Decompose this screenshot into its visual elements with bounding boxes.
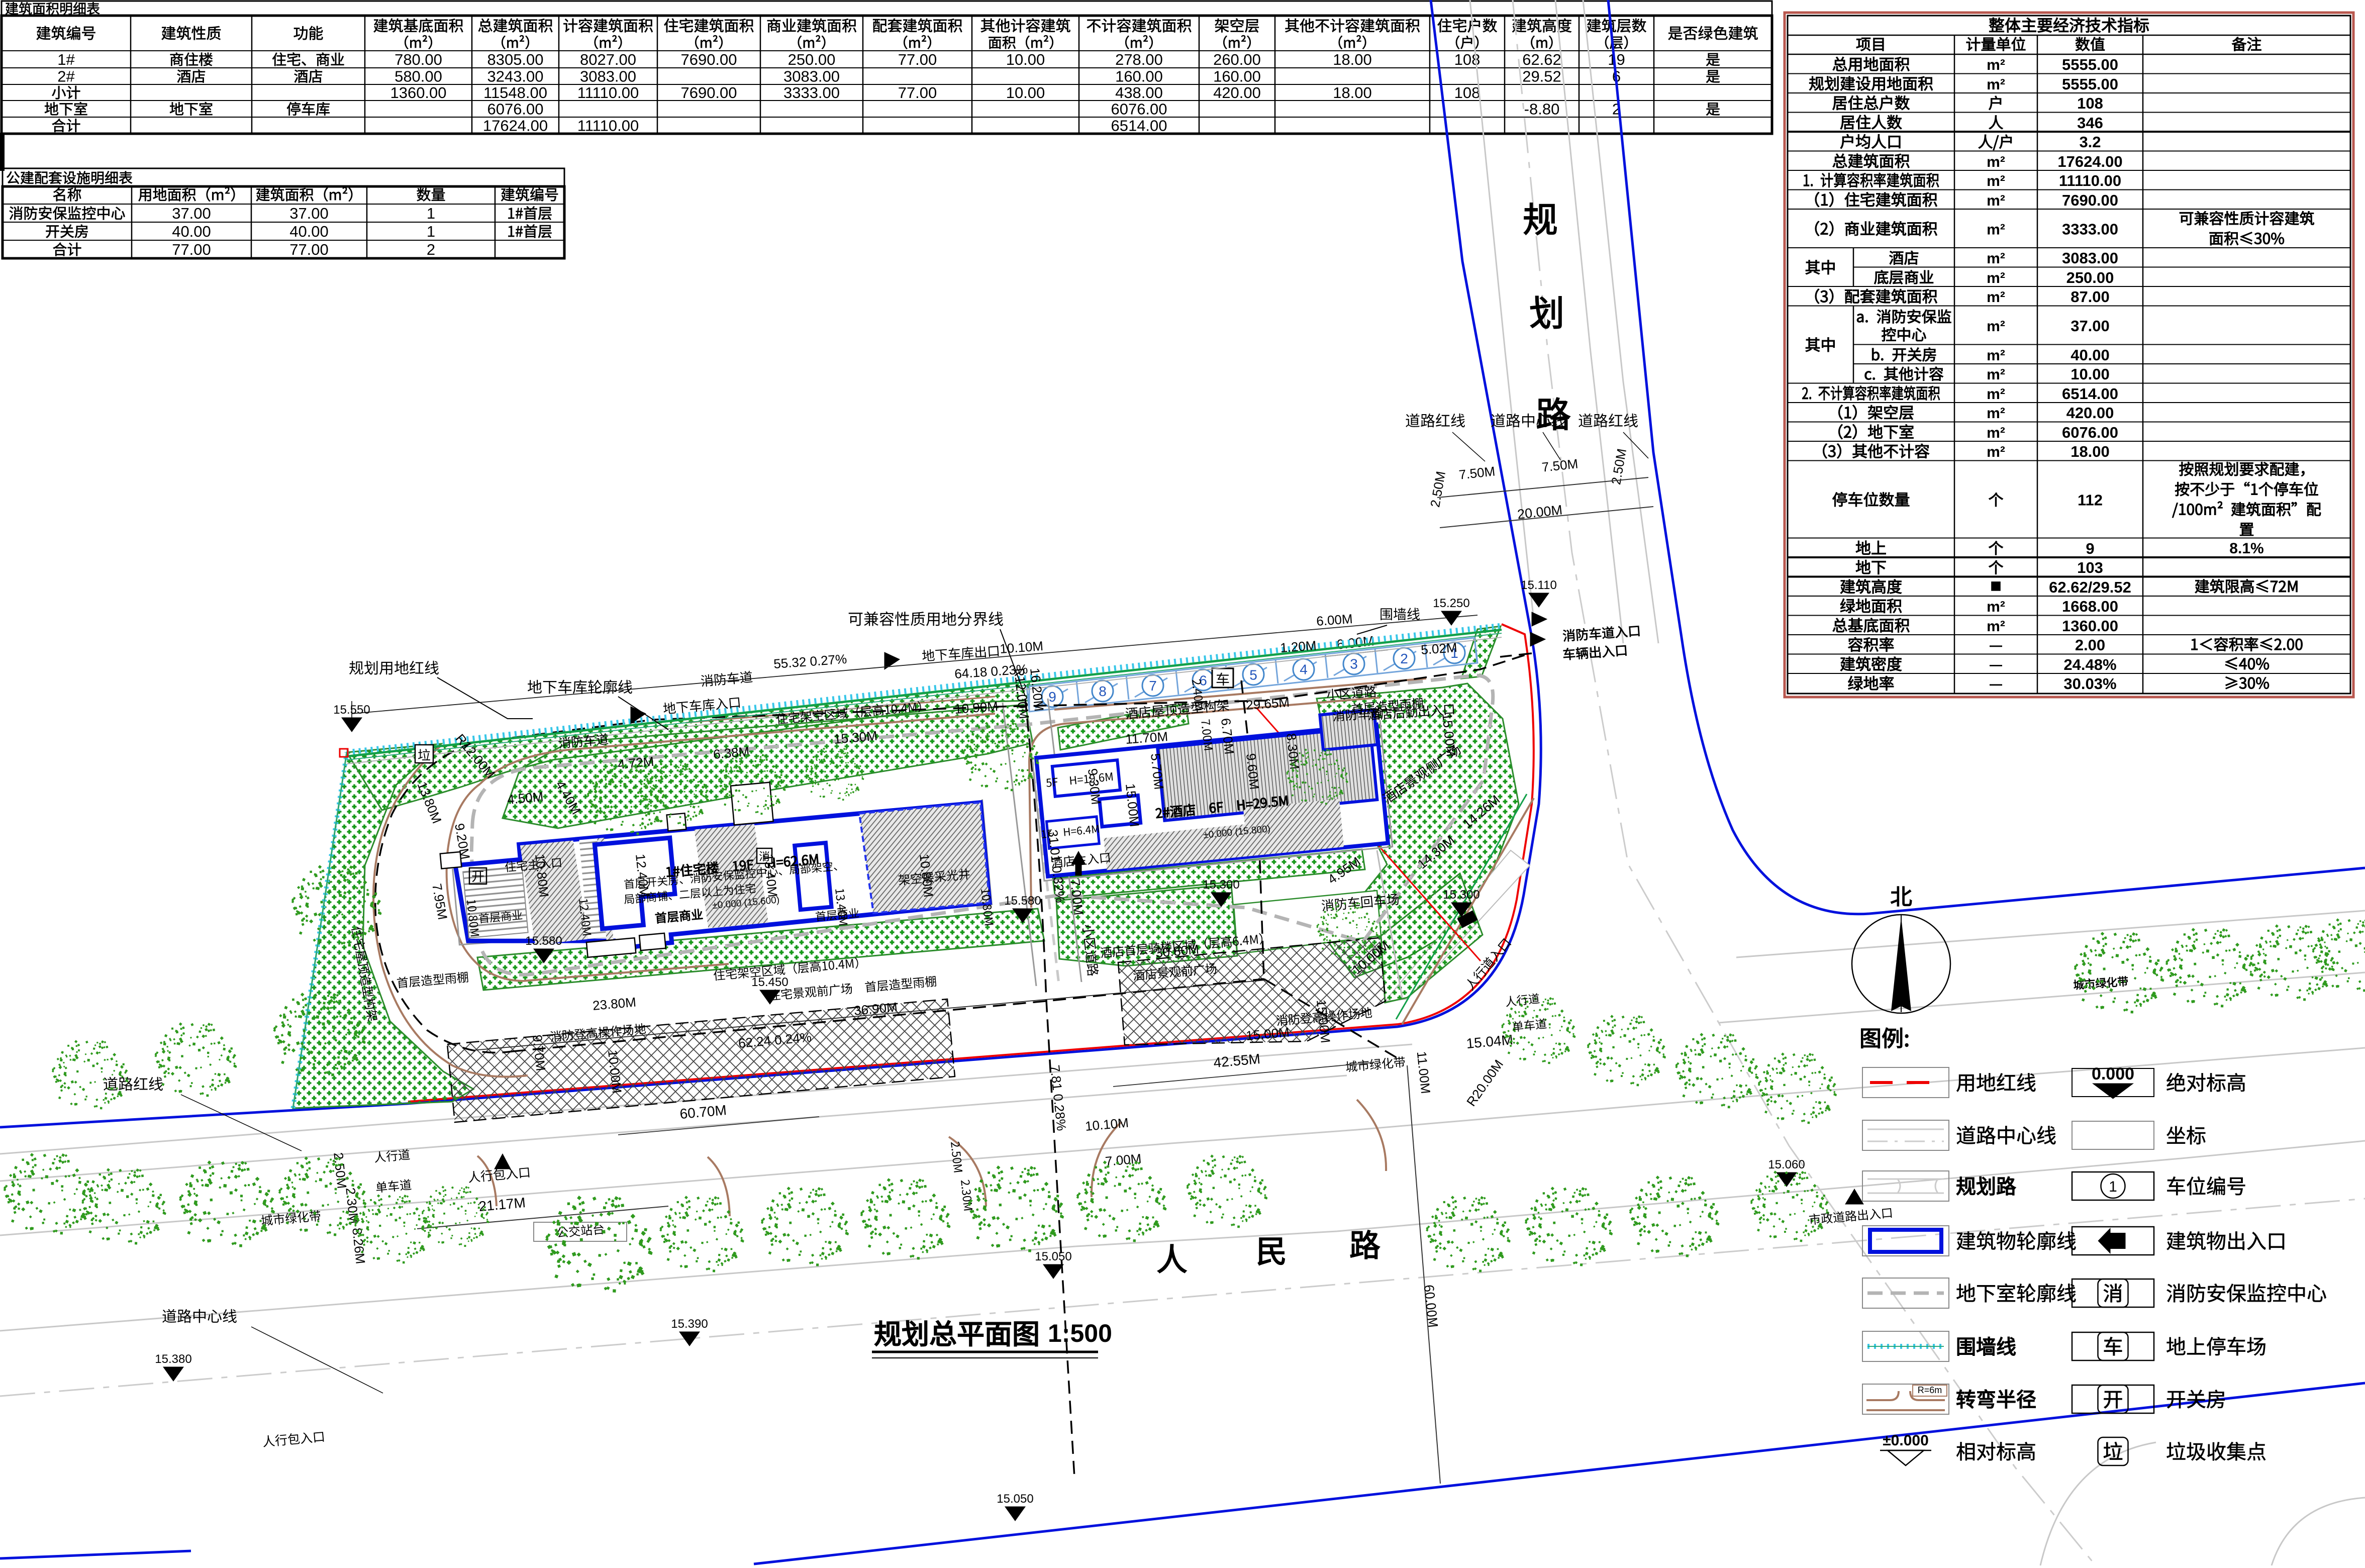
svg-text:m²: m² [1987, 289, 2005, 306]
svg-text:4: 4 [1300, 662, 1308, 677]
svg-text:6076.00: 6076.00 [1111, 101, 1167, 118]
svg-text:8: 8 [1099, 683, 1107, 699]
svg-text:40.00: 40.00 [2071, 346, 2110, 364]
svg-text:9: 9 [1048, 689, 1056, 705]
svg-text:m²: m² [1987, 222, 2005, 238]
svg-text:15.110: 15.110 [1521, 578, 1557, 592]
svg-text:346: 346 [2077, 114, 2103, 132]
svg-text:15.300: 15.300 [1443, 888, 1480, 902]
svg-text:260.00: 260.00 [1213, 51, 1261, 68]
svg-text:4.72M: 4.72M [617, 754, 655, 772]
svg-text:24.48%: 24.48% [2063, 656, 2116, 673]
svg-text:10.00: 10.00 [2071, 365, 2110, 383]
svg-text:6076.00: 6076.00 [2062, 424, 2118, 441]
svg-text:18.00: 18.00 [1333, 51, 1372, 68]
svg-text:3083.00: 3083.00 [580, 68, 636, 85]
svg-text:-8.80: -8.80 [1524, 101, 1560, 118]
svg-text:160.00: 160.00 [1213, 68, 1261, 85]
svg-text:6.00M: 6.00M [1316, 611, 1353, 629]
svg-text:62.62/29.52: 62.62/29.52 [2049, 578, 2131, 596]
svg-text:250.00: 250.00 [788, 51, 836, 68]
svg-text:37.00: 37.00 [289, 205, 329, 222]
svg-text:15.300: 15.300 [1203, 878, 1239, 892]
svg-text:40.00: 40.00 [172, 223, 211, 240]
svg-text:17624.00: 17624.00 [483, 117, 548, 135]
svg-text:11110.00: 11110.00 [577, 117, 639, 135]
svg-text:0.000: 0.000 [2092, 1064, 2134, 1084]
svg-text:11110.00: 11110.00 [2059, 172, 2121, 189]
svg-text:3: 3 [1350, 656, 1358, 672]
svg-text:15.250: 15.250 [1433, 597, 1469, 610]
svg-text:250.00: 250.00 [2066, 269, 2114, 286]
svg-text:108: 108 [2077, 94, 2103, 112]
svg-text:19: 19 [1608, 51, 1625, 68]
svg-text:11548.00: 11548.00 [483, 84, 547, 102]
svg-text:15.060: 15.060 [1768, 1158, 1805, 1171]
svg-text:1:500: 1:500 [1048, 1319, 1112, 1347]
svg-text:1360.00: 1360.00 [2062, 617, 2118, 635]
svg-text:438.00: 438.00 [1115, 84, 1163, 102]
svg-text:m²: m² [1987, 444, 2005, 460]
svg-text:278.00: 278.00 [1115, 51, 1163, 68]
svg-text:3.2: 3.2 [2079, 133, 2101, 151]
svg-text:112: 112 [2078, 492, 2103, 509]
svg-text:m²: m² [1987, 405, 2005, 422]
svg-text:R=6m: R=6m [1918, 1385, 1942, 1395]
svg-text:29.52: 29.52 [1522, 68, 1561, 85]
svg-text:8305.00: 8305.00 [487, 51, 543, 68]
svg-text:10.10M: 10.10M [999, 638, 1044, 656]
svg-text:6.38M: 6.38M [713, 744, 750, 762]
svg-text:5.02M: 5.02M [1420, 640, 1457, 657]
svg-text:3083.00: 3083.00 [783, 68, 840, 85]
svg-text:1: 1 [427, 223, 435, 240]
svg-text:77.00: 77.00 [898, 84, 937, 102]
svg-text:420.00: 420.00 [1213, 84, 1261, 102]
svg-text:10.90M: 10.90M [954, 699, 999, 717]
svg-text:15.550: 15.550 [333, 703, 370, 717]
svg-text:160.00: 160.00 [1115, 68, 1163, 85]
svg-text:m²: m² [1987, 318, 2005, 335]
svg-text:m²: m² [1987, 57, 2005, 73]
svg-text:1668.00: 1668.00 [2062, 598, 2118, 615]
svg-text:m²: m² [1987, 366, 2005, 383]
svg-text:7.00M: 7.00M [1105, 1151, 1142, 1169]
svg-text:62.62: 62.62 [1522, 51, 1561, 68]
svg-text:6076.00: 6076.00 [487, 101, 543, 118]
svg-text:15.580: 15.580 [525, 934, 562, 948]
svg-text:10.00: 10.00 [1006, 84, 1045, 102]
svg-text:5555.00: 5555.00 [2062, 56, 2118, 73]
svg-text:77.00: 77.00 [898, 51, 937, 68]
svg-text:m²: m² [1987, 154, 2005, 170]
svg-text:2: 2 [427, 241, 435, 258]
svg-text:m²: m² [1987, 173, 2005, 189]
svg-text:m²: m² [1987, 270, 2005, 286]
svg-text:15.050: 15.050 [1035, 1250, 1071, 1263]
svg-text:2.00: 2.00 [2075, 636, 2105, 654]
svg-text:4.50M: 4.50M [507, 789, 544, 807]
svg-text:17624.00: 17624.00 [2057, 153, 2122, 170]
svg-text:11110.00: 11110.00 [577, 84, 639, 102]
svg-text:1360.00: 1360.00 [390, 84, 446, 102]
svg-text:8027.00: 8027.00 [580, 51, 636, 68]
svg-text:108: 108 [1454, 84, 1481, 102]
svg-text:420.00: 420.00 [2066, 404, 2114, 422]
svg-text:103: 103 [2077, 559, 2103, 576]
svg-text:1.20M: 1.20M [1279, 638, 1317, 655]
svg-text:15.390: 15.390 [671, 1317, 708, 1331]
svg-text:15.380: 15.380 [155, 1352, 191, 1366]
svg-text:±0.000: ±0.000 [1883, 1432, 1929, 1449]
svg-text:780.00: 780.00 [395, 51, 442, 68]
svg-text:6514.00: 6514.00 [2062, 385, 2118, 403]
svg-text:15.450: 15.450 [751, 975, 788, 989]
svg-text:m²: m² [1987, 347, 2005, 364]
svg-text:580.00: 580.00 [395, 68, 442, 85]
svg-text:7690.00: 7690.00 [680, 51, 737, 68]
svg-text:5555.00: 5555.00 [2062, 75, 2118, 93]
svg-text:18.00: 18.00 [2071, 443, 2110, 460]
svg-text:37.00: 37.00 [2071, 317, 2110, 335]
svg-text:3083.00: 3083.00 [2062, 249, 2118, 267]
svg-text:3333.00: 3333.00 [783, 84, 840, 102]
svg-text:40.00: 40.00 [289, 223, 329, 240]
svg-text:m²: m² [1987, 425, 2005, 441]
svg-text:18.00: 18.00 [1333, 84, 1372, 102]
svg-text:m²: m² [1987, 618, 2005, 635]
svg-text:9: 9 [2086, 540, 2094, 557]
svg-text:m²: m² [1987, 386, 2005, 403]
svg-text:1: 1 [427, 205, 435, 222]
svg-text:8.1%: 8.1% [2229, 540, 2263, 557]
svg-text:1: 1 [2109, 1179, 2117, 1195]
svg-text:77.00: 77.00 [289, 241, 329, 258]
svg-text:m²: m² [1987, 250, 2005, 267]
svg-text:2#: 2# [57, 68, 75, 85]
svg-text:m²: m² [1987, 76, 2005, 93]
svg-text:15.050: 15.050 [997, 1492, 1033, 1506]
svg-text:m²: m² [1987, 599, 2005, 615]
svg-text:77.00: 77.00 [172, 241, 211, 258]
svg-text:m²: m² [1987, 192, 2005, 209]
svg-text:37.00: 37.00 [172, 205, 211, 222]
svg-text:6514.00: 6514.00 [1111, 117, 1167, 135]
svg-text:29.65M: 29.65M [1245, 695, 1290, 713]
svg-text:15.580: 15.580 [1004, 894, 1041, 908]
svg-text:30.03%: 30.03% [2063, 675, 2116, 693]
svg-text:10.00: 10.00 [1006, 51, 1045, 68]
svg-text:3333.00: 3333.00 [2062, 221, 2118, 238]
svg-text:5: 5 [1249, 667, 1257, 683]
svg-text:7690.00: 7690.00 [680, 84, 737, 102]
svg-text:1#: 1# [57, 51, 75, 68]
svg-text:2: 2 [1400, 651, 1408, 666]
svg-text:7690.00: 7690.00 [2062, 191, 2118, 209]
svg-text:87.00: 87.00 [2071, 288, 2110, 306]
svg-text:7: 7 [1149, 678, 1157, 694]
svg-text:3243.00: 3243.00 [487, 68, 543, 85]
svg-text:11.70M: 11.70M [1125, 729, 1168, 747]
